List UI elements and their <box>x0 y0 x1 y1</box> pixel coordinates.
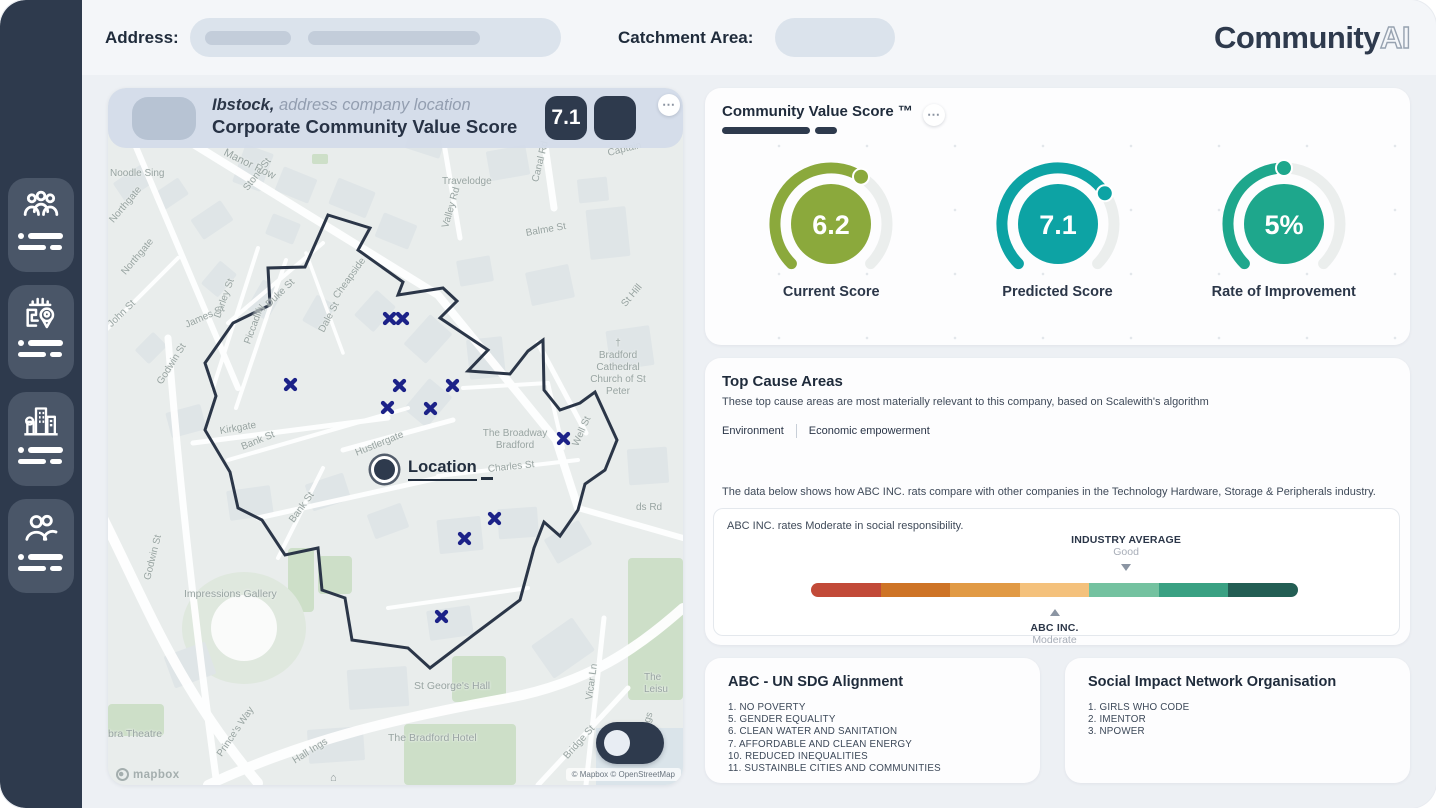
skeleton-line <box>18 340 64 346</box>
map-attribution[interactable]: © Mapbox © OpenStreetMap <box>566 768 681 781</box>
map-cluster-marker[interactable] <box>487 511 502 526</box>
cause-card-title: Top Cause Areas <box>722 373 843 390</box>
city-buildings-icon <box>21 401 61 441</box>
scale-segment <box>881 583 951 597</box>
company-tagline: address company location <box>279 96 471 114</box>
scale-segment <box>1228 583 1298 597</box>
map-cluster-marker[interactable] <box>457 531 472 546</box>
map-place-label: † Bradford Cathedral Church of St Peter <box>586 338 651 398</box>
un-sdg-alignment-card: ABC - UN SDG Alignment 1. NO POVERTY5. G… <box>705 658 1040 783</box>
gauge-label: Predicted Score <box>958 284 1158 300</box>
scale-segment <box>950 583 1020 597</box>
map-cluster-marker[interactable] <box>395 311 410 326</box>
list-item: 6. CLEAN WATER AND SANITATION <box>728 726 941 738</box>
top-cause-areas-card: Top Cause Areas These top cause areas ar… <box>705 358 1410 645</box>
map-header-text: Ibstock, address company location Corpor… <box>212 96 517 138</box>
skeleton-line <box>18 245 64 251</box>
skeleton-line <box>18 566 64 572</box>
list-item: 7. AFFORDABLE AND CLEAN ENERGY <box>728 739 941 751</box>
svg-text:6.2: 6.2 <box>812 210 850 240</box>
communityai-logo: CommunityAI <box>1214 20 1410 56</box>
catchment-area-label: Catchment Area: <box>618 28 753 48</box>
map-cluster-marker[interactable] <box>283 377 298 392</box>
map-place-label: The Broadway Bradford <box>483 428 547 452</box>
map-place-label: ds Rd <box>636 502 662 514</box>
sidebar-nav <box>0 0 82 808</box>
list-item: 2. IMENTOR <box>1088 714 1189 726</box>
company-rating-value: Moderate <box>985 634 1125 646</box>
toggle-knob-icon <box>604 730 630 756</box>
gauge-label: Rate of Improvement <box>1184 284 1384 300</box>
list-item: 10. REDUCED INEQUALITIES <box>728 751 941 763</box>
gauge-predicted-score: 7.1Predicted Score <box>958 154 1158 300</box>
triangle-down-icon <box>1121 564 1131 571</box>
scale-segment <box>811 583 881 597</box>
cause-tags: EnvironmentEconomic empowerment <box>722 424 930 438</box>
building-glyph-icon: ⌂ <box>330 772 337 784</box>
score-card-title: Community Value Score ™ <box>722 103 913 120</box>
company-rating-line: ABC INC. rates Moderate in social respon… <box>727 520 963 532</box>
mapbox-icon <box>116 768 129 781</box>
location-pin-icon <box>371 456 398 483</box>
sdg-card-title: ABC - UN SDG Alignment <box>728 674 903 690</box>
list-item: 3. NPOWER <box>1088 726 1189 738</box>
score-menu-button[interactable]: ⋯ <box>923 104 945 126</box>
communityai-dashboard: Address: Catchment Area: CommunityAI <box>0 0 1436 808</box>
industry-average-label: INDUSTRY AVERAGE <box>1056 534 1196 546</box>
map-cluster-marker[interactable] <box>423 401 438 416</box>
list-item: 1. GIRLS WHO CODE <box>1088 702 1189 714</box>
map-card: Noodle SingManor RowStone StTravelodgeVa… <box>108 88 683 785</box>
skeleton-line <box>18 447 64 453</box>
secondary-badge[interactable] <box>594 96 636 140</box>
map-cluster-marker[interactable] <box>434 609 449 624</box>
map-canvas[interactable]: Noodle SingManor RowStone StTravelodgeVa… <box>108 88 683 785</box>
rating-scale: INDUSTRY AVERAGE Good ABC INC. Moderate <box>811 583 1298 597</box>
company-rating-marker: ABC INC. Moderate <box>985 604 1125 646</box>
catchment-area-input[interactable] <box>775 18 895 57</box>
skeleton-line <box>18 554 64 560</box>
scale-segment <box>1089 583 1159 597</box>
svg-text:5%: 5% <box>1264 210 1303 240</box>
location-label: Location <box>408 458 477 481</box>
title-underline <box>722 127 837 134</box>
company-logo-placeholder <box>132 97 196 140</box>
cause-tag: Environment <box>722 425 784 437</box>
industry-average-value: Good <box>1056 546 1196 558</box>
map-place-label: St George's Hall <box>414 680 490 693</box>
map-menu-button[interactable]: ⋯ <box>658 94 680 116</box>
address-label: Address: <box>105 28 179 48</box>
tag-divider <box>796 424 797 438</box>
map-place-label: bra Theatre <box>108 728 162 741</box>
sidebar-item-team[interactable] <box>8 499 74 593</box>
map-place-label: The Bradford Hotel <box>388 732 477 745</box>
location-marker[interactable]: Location <box>371 456 493 483</box>
gauge-label: Current Score <box>731 284 931 300</box>
logo-text: Community <box>1214 20 1380 55</box>
address-input[interactable] <box>190 18 561 57</box>
gauge-arc: 6.2 <box>751 154 911 282</box>
map-place-label: Impressions Gallery <box>184 588 277 601</box>
score-badge: 7.1 <box>545 96 587 140</box>
sidebar-item-map-location[interactable] <box>8 285 74 379</box>
svg-text:7.1: 7.1 <box>1039 210 1077 240</box>
map-cluster-marker[interactable] <box>392 378 407 393</box>
rating-scale-bar <box>811 583 1298 597</box>
gauge-rate-of-improvement: 5%Rate of Improvement <box>1184 154 1384 300</box>
industry-comparison-panel: ABC INC. rates Moderate in social respon… <box>713 508 1400 636</box>
gauges-row: 6.2Current Score7.1Predicted Score5%Rate… <box>705 154 1410 300</box>
impact-list: 1. GIRLS WHO CODE2. IMENTOR3. NPOWER <box>1088 702 1189 739</box>
mapbox-wordmark-text: mapbox <box>133 769 180 781</box>
industry-comparison-intro: The data below shows how ABC INC. rats c… <box>722 486 1376 498</box>
address-placeholder-bar <box>205 31 291 45</box>
map-place-label: The Leisu <box>644 672 683 696</box>
mapbox-logo[interactable]: mapbox <box>116 768 180 781</box>
gauge-arc: 7.1 <box>978 154 1138 282</box>
map-cluster-marker[interactable] <box>380 400 395 415</box>
people-group-icon <box>21 187 61 227</box>
list-item: 5. GENDER EQUALITY <box>728 714 941 726</box>
map-place-label: Travelodge <box>442 176 492 188</box>
map-style-toggle[interactable] <box>596 722 664 764</box>
map-header-card: Ibstock, address company location Corpor… <box>108 88 683 148</box>
map-header-title: Corporate Community Value Score <box>212 116 517 138</box>
sidebar-item-people-group[interactable] <box>8 178 74 272</box>
company-rating-label: ABC INC. <box>985 622 1125 634</box>
gauge-arc: 5% <box>1204 154 1364 282</box>
gauge-current-score: 6.2Current Score <box>731 154 931 300</box>
cause-tag: Economic empowerment <box>809 425 930 437</box>
community-value-score-card: Community Value Score ™ ⋯ 6.2Current Sco… <box>705 88 1410 345</box>
main-content: Noodle SingManor RowStone StTravelodgeVa… <box>82 75 1436 808</box>
scale-segment <box>1020 583 1090 597</box>
map-cluster-marker[interactable] <box>445 378 460 393</box>
topbar: Address: Catchment Area: CommunityAI <box>82 0 1436 75</box>
triangle-up-icon <box>1050 609 1060 616</box>
industry-average-marker: INDUSTRY AVERAGE Good <box>1056 534 1196 576</box>
map-place-label: Noodle Sing <box>110 168 164 180</box>
sdg-list: 1. NO POVERTY5. GENDER EQUALITY6. CLEAN … <box>728 702 941 775</box>
team-icon <box>21 508 61 548</box>
cause-card-subtitle: These top cause areas are most materiall… <box>722 396 1209 408</box>
list-item: 11. SUSTAINBLE CITIES AND COMMUNITIES <box>728 763 941 775</box>
skeleton-line <box>18 233 64 239</box>
sidebar-item-city-buildings[interactable] <box>8 392 74 486</box>
map-location-icon <box>21 294 61 334</box>
skeleton-line <box>18 459 64 465</box>
address-placeholder-bar <box>308 31 480 45</box>
scale-segment <box>1159 583 1229 597</box>
map-cluster-marker[interactable] <box>556 431 571 446</box>
logo-ai-text: AI <box>1380 20 1410 55</box>
skeleton-line <box>18 352 64 358</box>
social-impact-network-card: Social Impact Network Organisation 1. GI… <box>1065 658 1410 783</box>
company-name: Ibstock, <box>212 96 274 114</box>
impact-card-title: Social Impact Network Organisation <box>1088 674 1336 690</box>
list-item: 1. NO POVERTY <box>728 702 941 714</box>
location-cursor <box>481 477 493 480</box>
